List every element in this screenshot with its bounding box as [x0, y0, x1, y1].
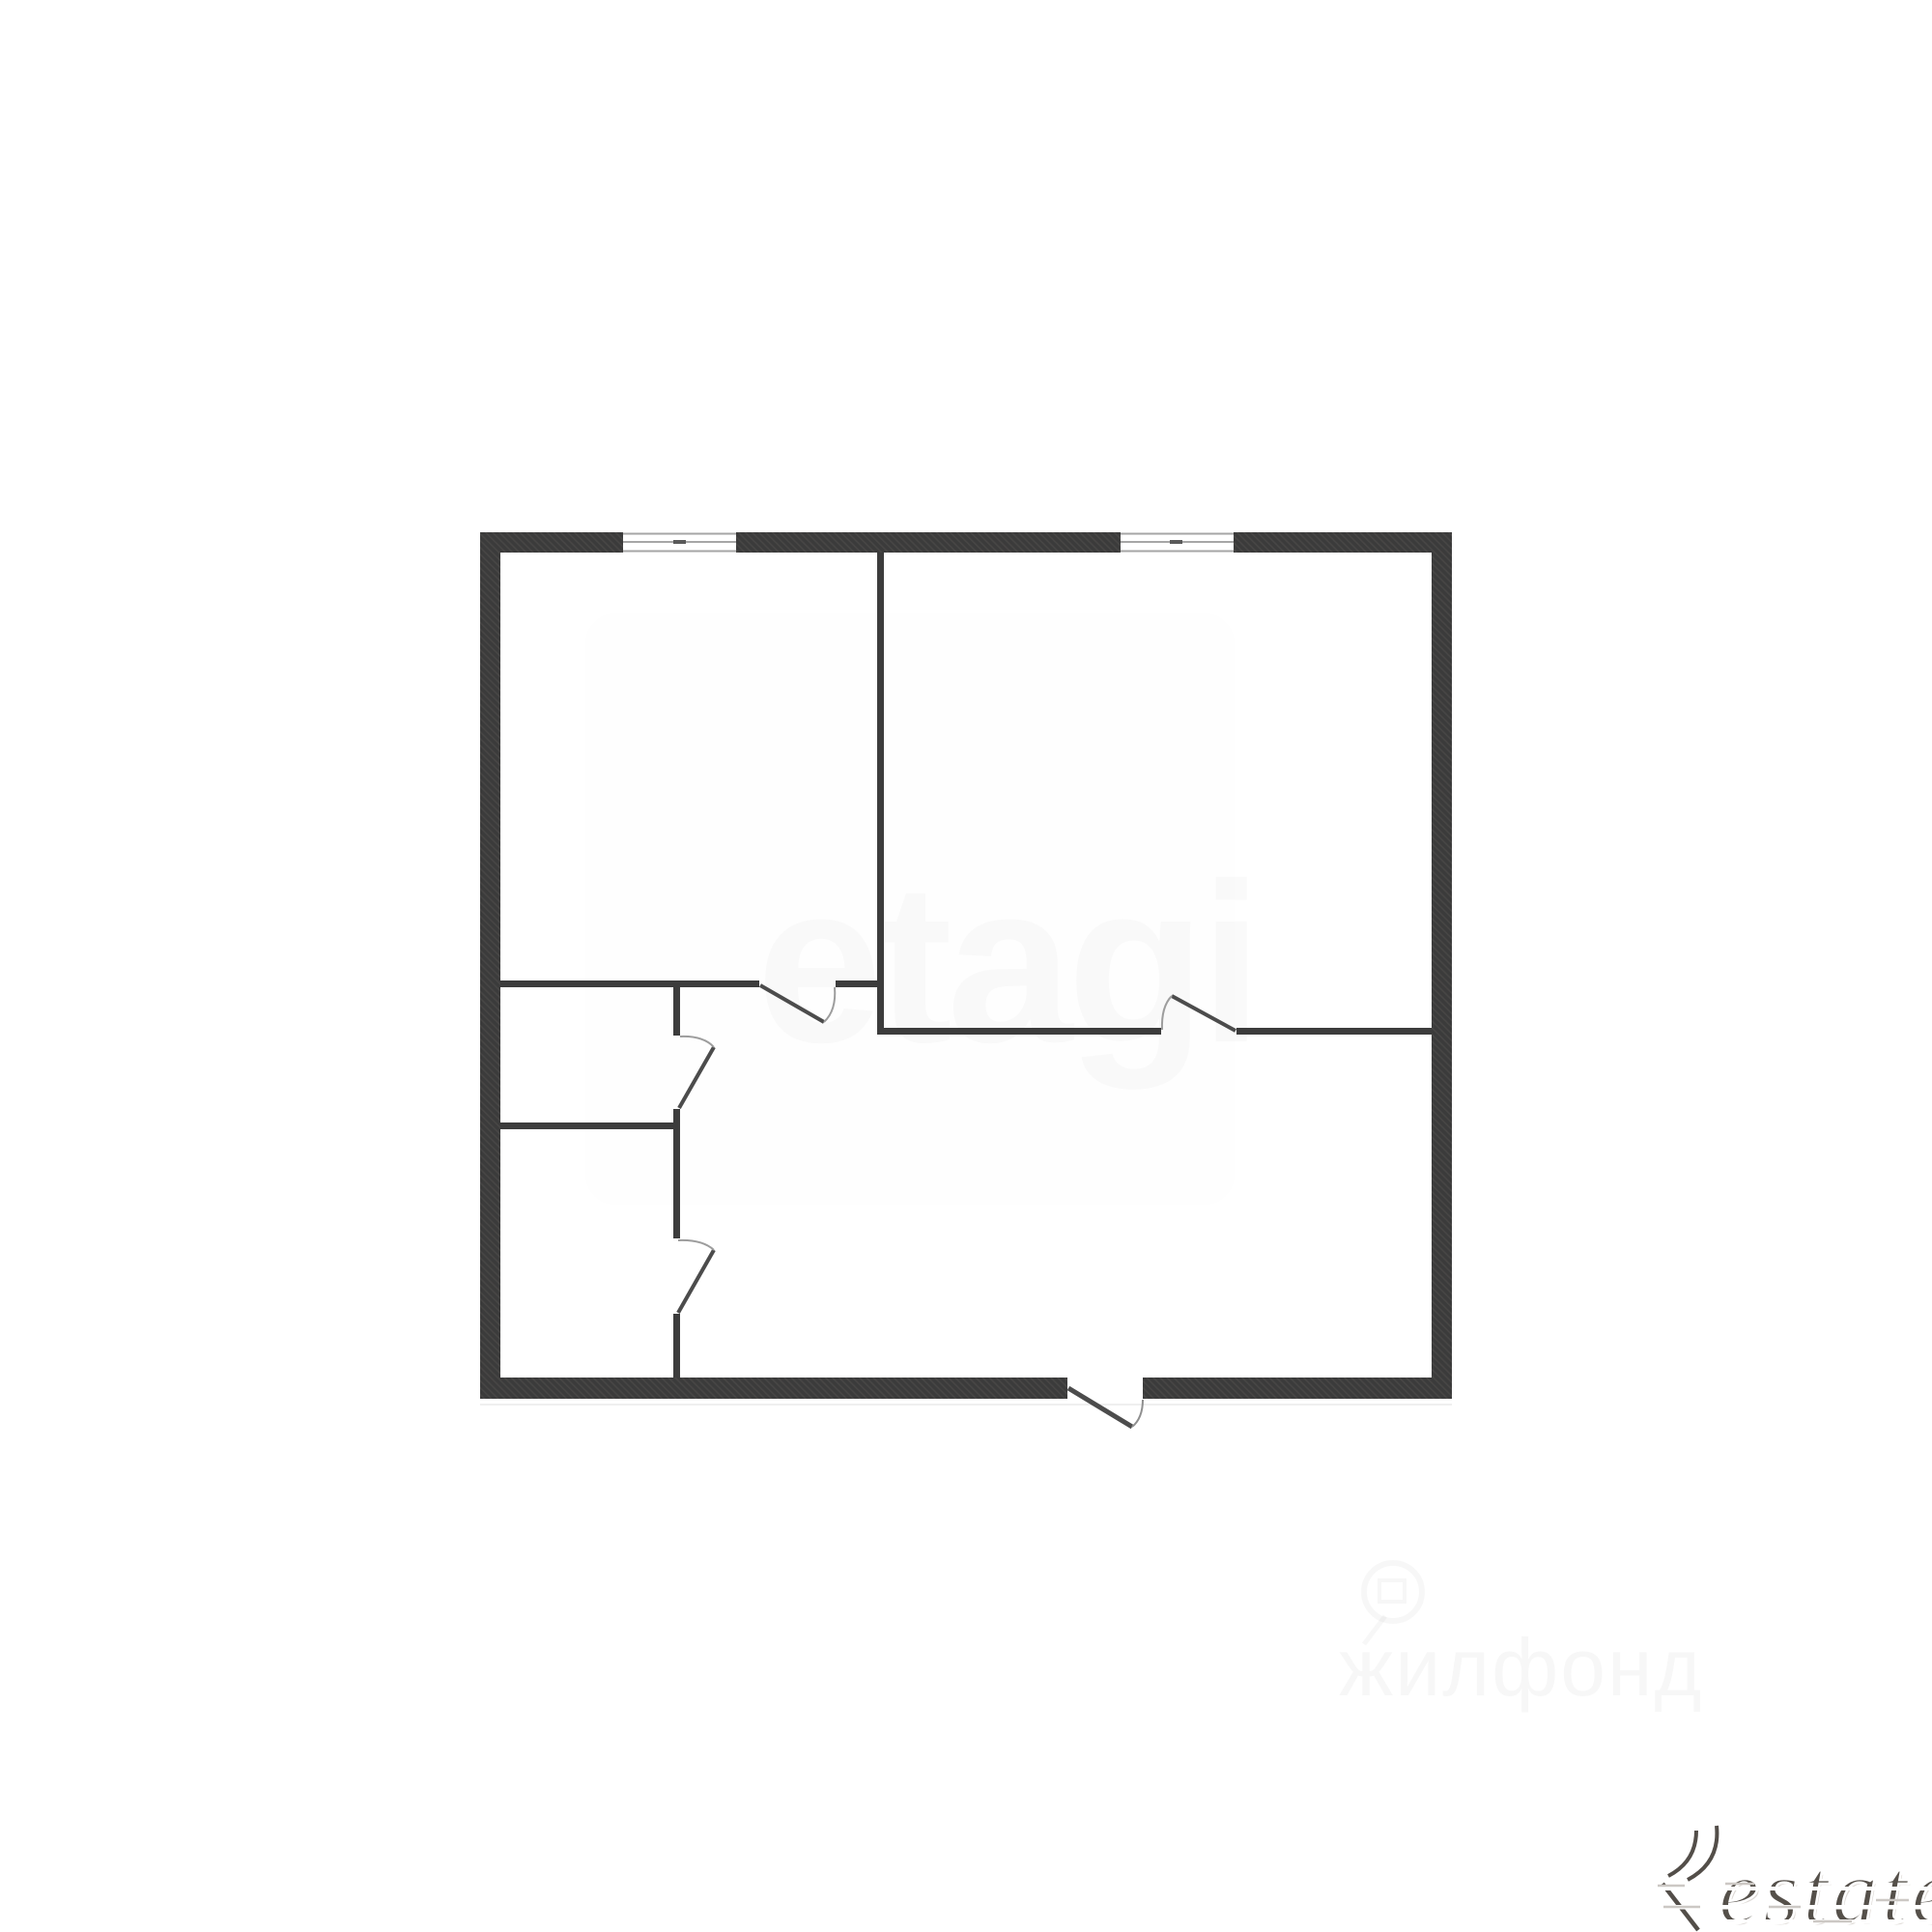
svg-text:estate: estate [1719, 1840, 1932, 1932]
svg-text:жилфонд: жилфонд [1339, 1622, 1703, 1713]
svg-text:etagi: etagi [756, 836, 1258, 1090]
